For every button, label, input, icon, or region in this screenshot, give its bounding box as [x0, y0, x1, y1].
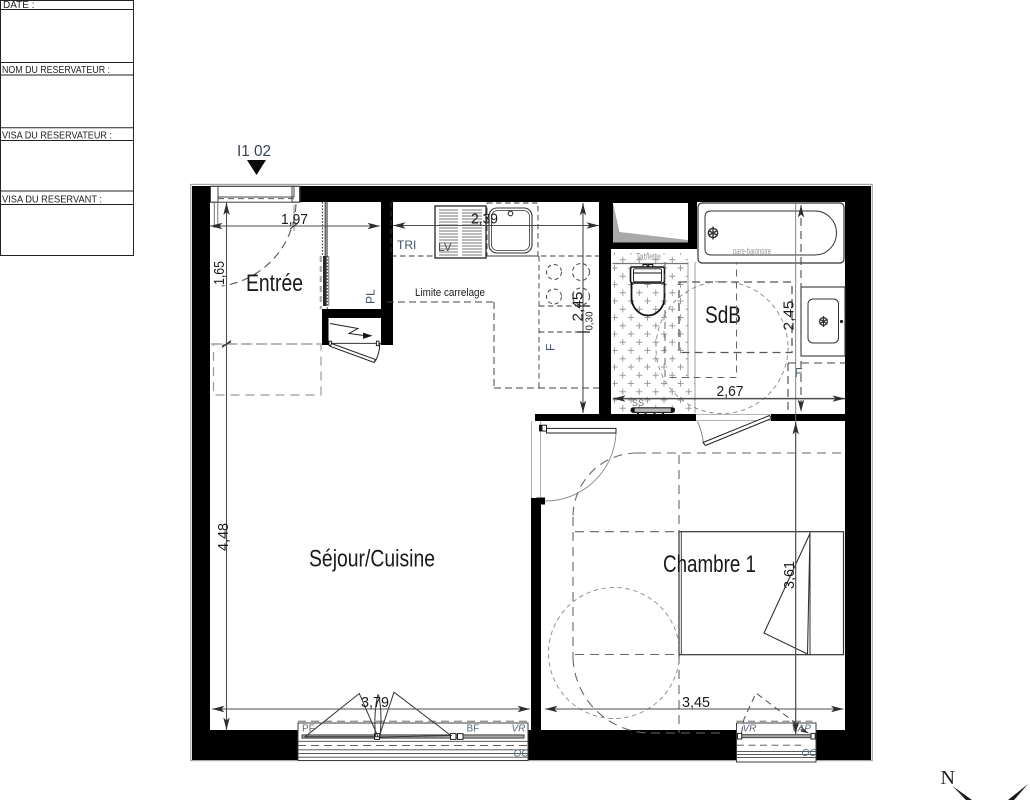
svg-text:3,79: 3,79	[361, 694, 389, 711]
svg-text:0,30: 0,30	[585, 311, 596, 330]
svg-text:SdB: SdB	[705, 302, 741, 329]
svg-text:Séjour/Cuisine: Séjour/Cuisine	[309, 546, 435, 573]
svg-text:VISA DU RESERVANT :: VISA DU RESERVANT :	[2, 195, 102, 206]
svg-text:1,97: 1,97	[281, 211, 308, 228]
svg-text:1,65: 1,65	[211, 261, 228, 285]
svg-text:PL: PL	[364, 289, 378, 304]
svg-text:TRI: TRI	[397, 238, 416, 252]
svg-text:N: N	[941, 767, 955, 789]
svg-text:Chambre 1: Chambre 1	[663, 551, 756, 578]
svg-text:NOM DU RESERVATEUR :: NOM DU RESERVATEUR :	[2, 65, 110, 76]
svg-text:DATE :: DATE :	[3, 0, 34, 11]
svg-text:OC: OC	[514, 749, 530, 760]
svg-text:3,61: 3,61	[781, 561, 798, 589]
svg-text:SS: SS	[632, 398, 644, 408]
svg-text:VISA DU RESERVATEUR :: VISA DU RESERVATEUR :	[2, 131, 112, 142]
svg-text:Entrée: Entrée	[246, 270, 303, 297]
svg-text:F: F	[544, 344, 558, 351]
svg-text:PF: PF	[302, 724, 315, 735]
svg-text:2,39: 2,39	[471, 211, 498, 228]
svg-text:2,45: 2,45	[781, 301, 798, 331]
svg-text:VR: VR	[743, 724, 757, 735]
svg-text:BF: BF	[467, 724, 480, 735]
svg-text:2,67: 2,67	[717, 383, 744, 400]
svg-text:LV: LV	[438, 240, 452, 254]
svg-text:VR: VR	[512, 724, 526, 735]
svg-text:OC: OC	[802, 748, 818, 759]
svg-text:3,45: 3,45	[682, 694, 710, 711]
svg-text:I1 02: I1 02	[237, 143, 271, 160]
svg-text:pare-baignoire: pare-baignoire	[733, 246, 771, 256]
svg-text:Limite carrelage: Limite carrelage	[415, 287, 485, 299]
svg-text:Tablette: Tablette	[636, 252, 661, 262]
svg-text:4,48: 4,48	[215, 523, 232, 551]
